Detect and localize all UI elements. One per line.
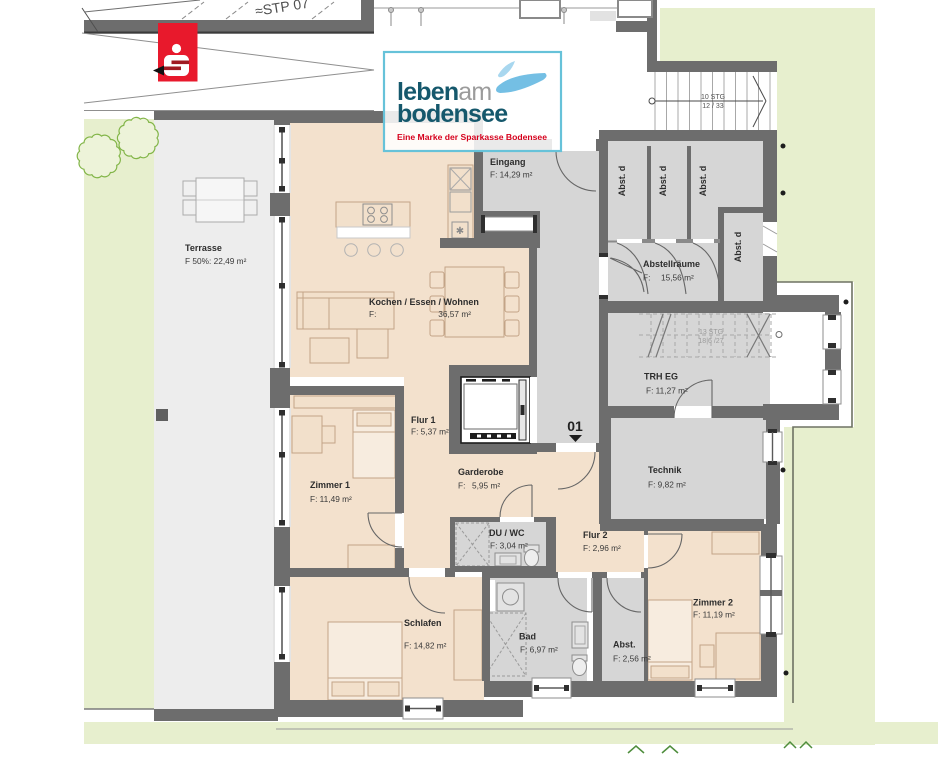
svg-text:Flur 1: Flur 1 xyxy=(411,415,436,425)
svg-text:TRH EG: TRH EG xyxy=(644,372,678,382)
svg-text:Eingang: Eingang xyxy=(490,157,526,167)
svg-text:Technik: Technik xyxy=(648,465,682,475)
svg-text:F: 2,56 m²: F: 2,56 m² xyxy=(613,654,651,664)
svg-text:Zimmer 1: Zimmer 1 xyxy=(310,480,350,490)
svg-text:F: 3,04 m²: F: 3,04 m² xyxy=(490,541,528,551)
svg-text:18|6 /27: 18|6 /27 xyxy=(698,338,723,345)
svg-text:Abst. d: Abst. d xyxy=(658,166,668,197)
svg-text:Abstellräume: Abstellräume xyxy=(643,259,700,269)
svg-text:36,57 m²: 36,57 m² xyxy=(438,309,471,319)
svg-text:DU / WC: DU / WC xyxy=(489,528,525,538)
svg-text:Abst.: Abst. xyxy=(613,640,636,650)
svg-text:Abst. d: Abst. d xyxy=(733,232,743,263)
svg-text:13 STG: 13 STG xyxy=(699,329,723,336)
svg-text:Garderobe: Garderobe xyxy=(458,467,504,477)
svg-text:Zimmer 2: Zimmer 2 xyxy=(693,598,733,608)
svg-text:Terrasse: Terrasse xyxy=(185,243,222,253)
svg-text:F:: F: xyxy=(643,273,650,283)
svg-text:Eine Marke der Sparkasse Boden: Eine Marke der Sparkasse Bodensee xyxy=(397,132,547,142)
svg-text:Kochen / Essen / Wohnen: Kochen / Essen / Wohnen xyxy=(369,297,479,307)
svg-text:bodensee: bodensee xyxy=(397,100,508,128)
svg-text:Flur 2: Flur 2 xyxy=(583,530,608,540)
svg-text:01: 01 xyxy=(567,418,583,434)
svg-text:Bad: Bad xyxy=(519,632,536,642)
svg-text:F 50%: 22,49 m²: F 50%: 22,49 m² xyxy=(185,256,247,266)
svg-text:F: 11,19 m²: F: 11,19 m² xyxy=(693,610,735,620)
svg-text:Abst. d: Abst. d xyxy=(698,166,708,197)
svg-text:F: 11,27 m²: F: 11,27 m² xyxy=(646,386,688,396)
svg-text:12 / 33: 12 / 33 xyxy=(702,103,724,110)
svg-text:F: 5,37 m²: F: 5,37 m² xyxy=(411,427,449,437)
svg-text:15,56 m²: 15,56 m² xyxy=(661,273,694,283)
svg-text:5,95 m²: 5,95 m² xyxy=(472,481,500,491)
svg-text:F: 14,29 m²: F: 14,29 m² xyxy=(490,170,533,180)
svg-text:F: 9,82 m²: F: 9,82 m² xyxy=(648,480,686,490)
svg-text:F: 11,49 m²: F: 11,49 m² xyxy=(310,494,352,504)
svg-text:F: 14,82 m²: F: 14,82 m² xyxy=(404,641,447,651)
svg-text:10 STG: 10 STG xyxy=(701,94,725,101)
svg-text:F:: F: xyxy=(458,481,465,491)
svg-text:F: 6,97 m²: F: 6,97 m² xyxy=(520,645,558,655)
svg-text:Schlafen: Schlafen xyxy=(404,618,442,628)
svg-text:F: 2,96 m²: F: 2,96 m² xyxy=(583,543,621,553)
svg-text:F:: F: xyxy=(369,309,376,319)
svg-text:✱: ✱ xyxy=(456,226,464,237)
svg-text:Abst. d: Abst. d xyxy=(617,166,627,197)
